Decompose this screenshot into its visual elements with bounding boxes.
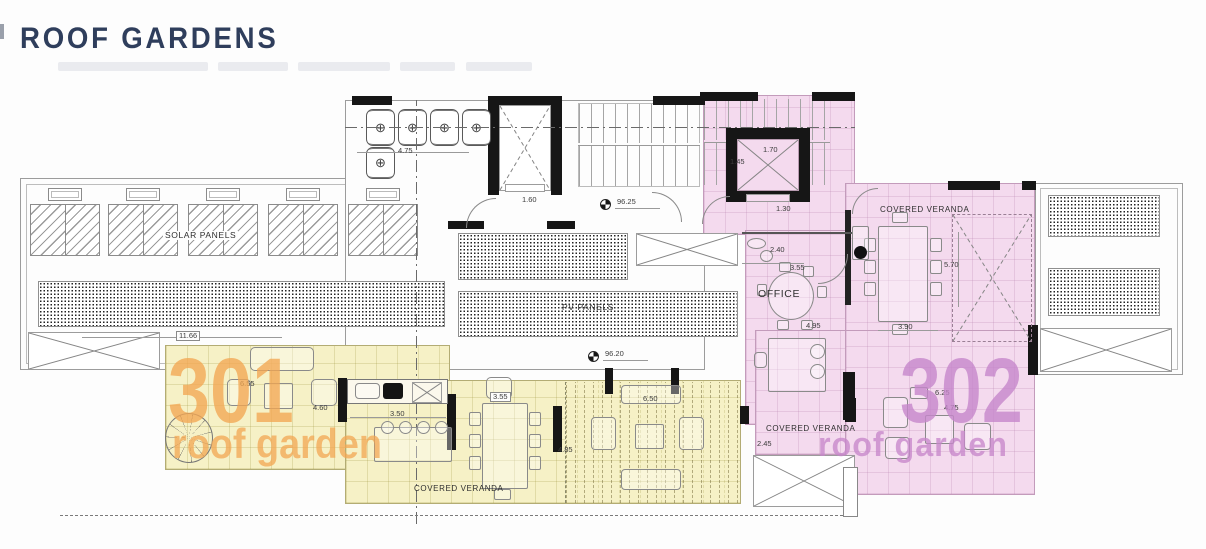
dimension: 4.95: [806, 322, 821, 330]
solar-panel-cap: [206, 188, 240, 201]
chair: [417, 421, 430, 434]
floor-plan-canvas: ROOF GARDENS: [0, 0, 1206, 549]
elevator-door: [746, 194, 790, 202]
solar-panel: [30, 204, 100, 256]
kitchen-sink: [355, 383, 380, 399]
faded-subtitle-fragment: [298, 62, 390, 71]
wall-segment: [812, 92, 855, 101]
faded-subtitle-fragment: [400, 62, 455, 71]
elevator-door: [505, 184, 545, 192]
dimension: 4.85: [558, 446, 573, 454]
solar-panels-label: SOLAR PANELS: [163, 231, 238, 240]
dimension: 2.40: [770, 246, 785, 254]
wall-segment: [653, 96, 705, 105]
wall-segment: [605, 368, 613, 394]
bbq-grill: [854, 246, 867, 259]
elevator-shaft: [499, 105, 551, 191]
roof-edge-dashed-line: [60, 515, 843, 516]
dimension: 1.60: [522, 196, 537, 204]
column: [843, 467, 858, 517]
x-mark-icon: [413, 383, 441, 402]
unit-302-number: 302: [900, 356, 1023, 428]
chair: [777, 320, 789, 330]
wall-segment: [1022, 181, 1036, 190]
skylight: [636, 233, 738, 266]
level-marker-icon: [588, 351, 599, 362]
dimension: 4.75: [398, 147, 413, 155]
dimension: 1.45: [730, 158, 745, 166]
dimension-line: [958, 232, 959, 307]
chair: [529, 434, 541, 448]
pv-panels-label: PV PANELS: [562, 303, 614, 312]
skylight: [1040, 328, 1172, 372]
dimension: 5.70: [944, 261, 959, 269]
level-value: 96.25: [617, 198, 636, 206]
armchair: [591, 417, 616, 450]
dimension: 4.60: [313, 404, 328, 412]
office-label: OFFICE: [758, 289, 800, 300]
wall-segment: [948, 181, 1000, 190]
wall-segment: [551, 96, 562, 195]
chair: [435, 421, 448, 434]
dimension: 3.50: [390, 410, 405, 418]
pv-panel-field: [458, 291, 738, 337]
x-mark-icon: [637, 234, 737, 265]
cooktop: [383, 383, 403, 399]
dimension: 1.30: [776, 205, 791, 213]
guest-chair: [810, 344, 825, 359]
wall-segment: [547, 221, 575, 229]
wall-segment: [700, 92, 758, 101]
dining-table: [878, 226, 928, 322]
dimension: 3.55: [790, 264, 805, 272]
dimension-line: [357, 152, 469, 153]
chair: [803, 266, 814, 277]
page-edge-mark: [0, 24, 4, 39]
chair: [469, 434, 481, 448]
wc-sink: [747, 238, 766, 249]
centerline: [345, 127, 855, 128]
pv-panel-field: [38, 281, 445, 327]
pv-panel-field: [458, 233, 628, 280]
armchair: [311, 379, 337, 406]
x-mark-icon: [29, 333, 159, 369]
dimension: 3.90: [898, 323, 913, 331]
wall-segment: [488, 96, 499, 195]
chair: [817, 286, 827, 298]
unit-301-number: 301: [168, 356, 294, 428]
chair: [864, 260, 876, 274]
solar-panel: [268, 204, 338, 256]
chair: [469, 412, 481, 426]
chair: [930, 282, 942, 296]
level-value: 96.20: [605, 350, 624, 358]
chair: [930, 238, 942, 252]
wall-segment: [742, 232, 852, 234]
dimension: 2.45: [757, 440, 772, 448]
chair: [399, 421, 412, 434]
grill-table: [412, 382, 442, 403]
chair: [469, 456, 481, 470]
dimension: 1.70: [763, 146, 778, 154]
dimension-line: [615, 208, 660, 209]
dining-table: [482, 403, 528, 489]
armchair: [679, 417, 704, 450]
chair: [529, 412, 541, 426]
chair: [529, 456, 541, 470]
coffee-table: [635, 424, 664, 449]
faded-subtitle-fragment: [58, 62, 208, 71]
dimension: 3.55: [490, 392, 511, 402]
x-mark-icon: [953, 215, 1031, 341]
solar-panel-cap: [126, 188, 160, 201]
solar-panel: [348, 204, 418, 256]
unit-301-name: roof garden: [172, 428, 382, 461]
x-mark-icon: [1041, 329, 1171, 371]
wall-segment: [352, 96, 392, 105]
stair-landing-line: [578, 145, 700, 146]
chair: [864, 282, 876, 296]
covered-veranda-label: COVERED VERANDA: [414, 485, 503, 493]
pergola: [952, 214, 1032, 342]
faded-subtitle-fragment: [466, 62, 532, 71]
pv-panel-field: [1048, 195, 1160, 237]
sofa: [621, 469, 681, 490]
faded-subtitle-fragment: [218, 62, 288, 71]
level-marker-icon: [600, 199, 611, 210]
dimension-line: [603, 360, 648, 361]
x-mark-icon: [500, 106, 550, 190]
dimension: 6.50: [643, 395, 658, 403]
chair: [381, 421, 394, 434]
office-chair: [754, 352, 767, 368]
covered-veranda-label: COVERED VERANDA: [880, 206, 969, 214]
pv-panel-field: [1048, 268, 1160, 316]
solar-panel-cap: [48, 188, 82, 201]
solar-panel-cap: [366, 188, 400, 201]
unit-302-name: roof garden: [818, 432, 1008, 459]
wall-segment: [338, 378, 347, 422]
wall-segment: [845, 398, 856, 422]
chair: [930, 260, 942, 274]
guest-chair: [810, 364, 825, 379]
page-title: ROOF GARDENS: [20, 22, 279, 56]
wall-segment: [740, 406, 749, 424]
solar-panel-cap: [286, 188, 320, 201]
